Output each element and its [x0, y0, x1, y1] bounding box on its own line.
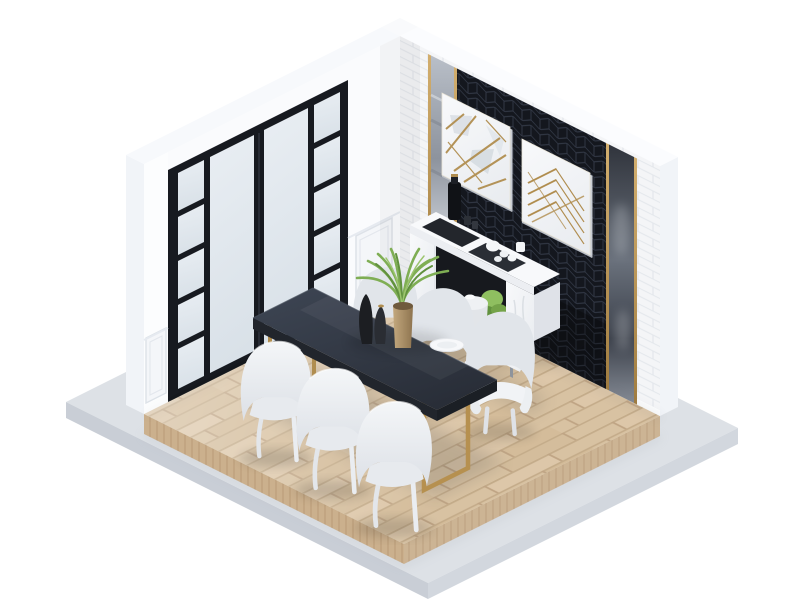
centerpiece-plate	[430, 339, 464, 352]
centerpiece-vase	[393, 302, 413, 348]
left-wall-outer-edge	[126, 155, 144, 414]
sideboard-leg-right	[510, 367, 513, 378]
isometric-dining-room	[0, 0, 800, 600]
gold-trim	[634, 157, 637, 405]
gold-trim	[606, 143, 609, 391]
wall-pier	[144, 152, 168, 414]
render-canvas	[0, 0, 800, 600]
mirror-strip-right	[609, 145, 634, 404]
window-ladder-column	[178, 160, 204, 389]
black-bottle	[448, 182, 461, 220]
window-ladder-column	[314, 92, 340, 321]
right-wall-outer-edge	[660, 157, 678, 416]
teapot	[486, 241, 500, 252]
window-pane-large	[210, 135, 254, 373]
